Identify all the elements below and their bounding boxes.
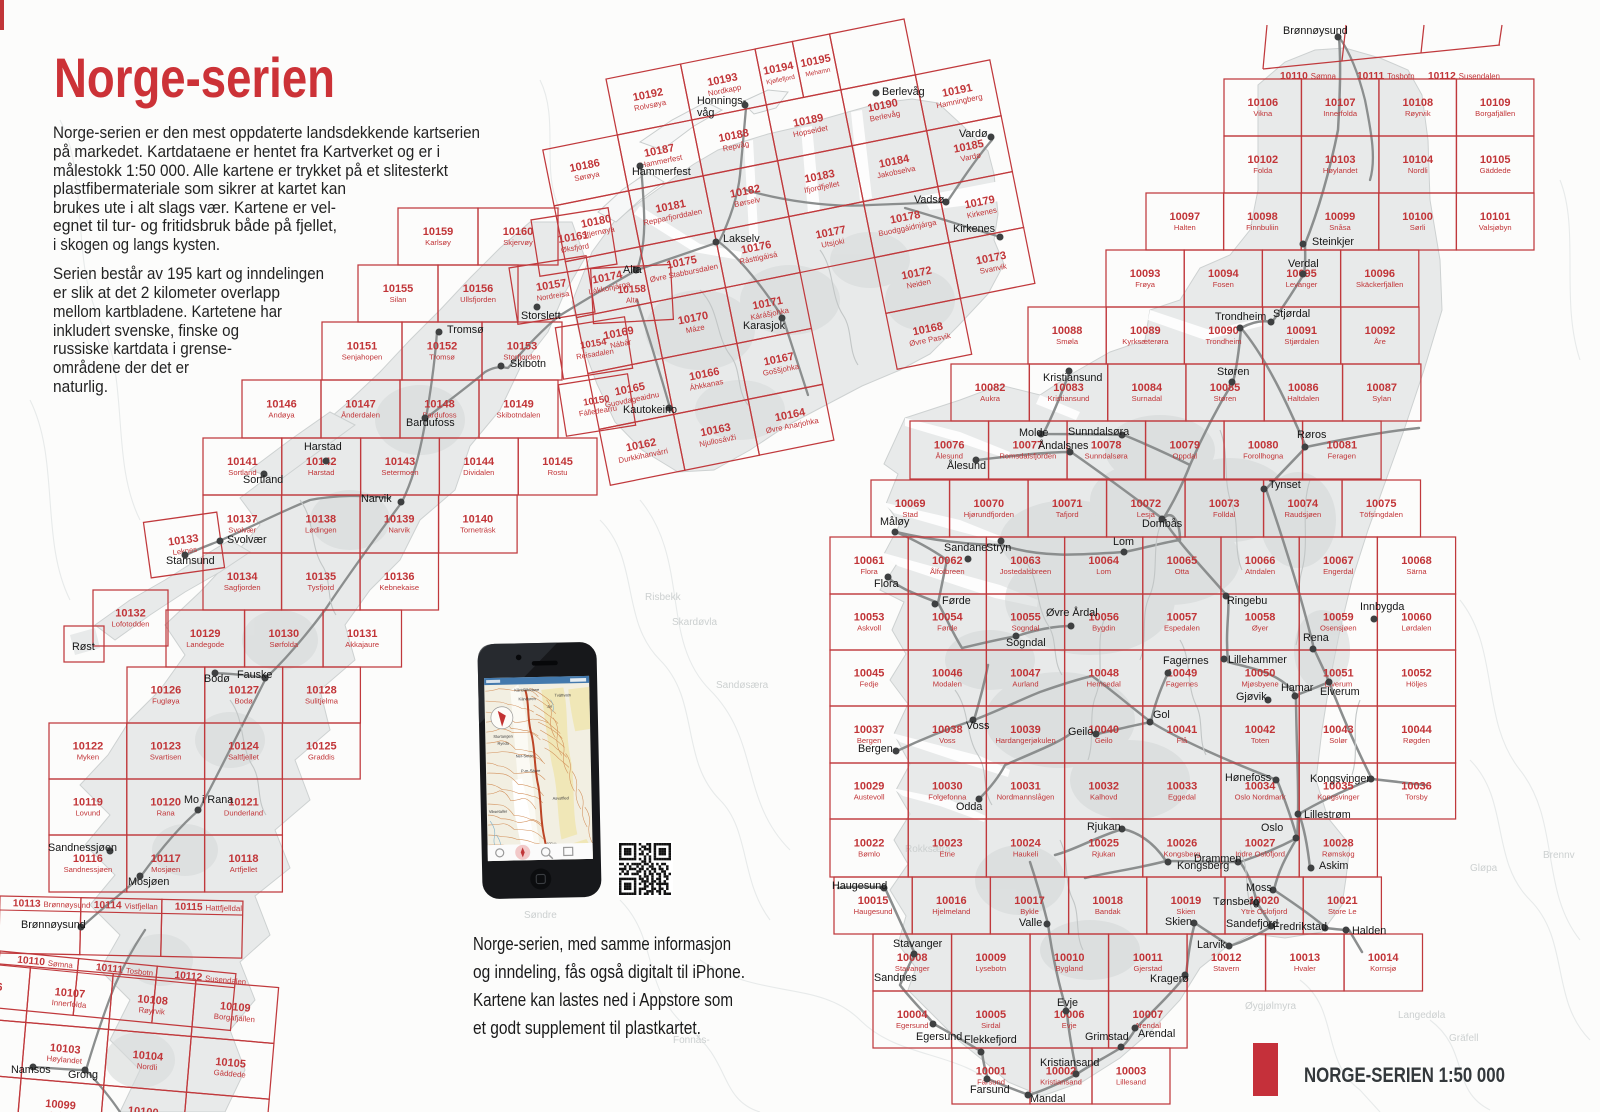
svg-text:Lødingen: Lødingen: [305, 526, 337, 535]
svg-text:Skibotndalen: Skibotndalen: [497, 411, 541, 420]
svg-text:10123: 10123: [150, 741, 181, 753]
svg-text:Rømskog: Rømskog: [1322, 850, 1355, 859]
svg-text:Øygjølmyra: Øygjølmyra: [1245, 1001, 1297, 1012]
svg-text:10129: 10129: [190, 628, 221, 640]
svg-text:10109: 10109: [1480, 97, 1511, 109]
svg-text:10096: 10096: [1364, 268, 1395, 280]
svg-text:Hammerfest: Hammerfest: [632, 166, 691, 178]
svg-text:10055: 10055: [1010, 612, 1041, 624]
svg-text:Skien: Skien: [1165, 916, 1192, 928]
svg-text:Brønnøysund: Brønnøysund: [21, 919, 86, 931]
svg-text:Lofotodden: Lofotodden: [111, 620, 149, 629]
svg-text:10107: 10107: [1325, 97, 1356, 109]
svg-text:10019: 10019: [1171, 895, 1202, 907]
svg-text:Søndre: Søndre: [524, 910, 557, 921]
svg-text:Ålfotbreen: Ålfotbreen: [930, 567, 965, 576]
svg-text:Fedje: Fedje: [860, 680, 879, 689]
svg-text:Fugløya: Fugløya: [152, 697, 180, 706]
svg-text:Lysebotn: Lysebotn: [976, 964, 1007, 973]
svg-text:Langedøla: Langedøla: [1398, 1010, 1446, 1021]
svg-text:Brennv: Brennv: [1543, 850, 1575, 861]
svg-text:10073: 10073: [1209, 498, 1240, 510]
svg-text:10082: 10082: [975, 382, 1006, 394]
svg-text:Sirdal: Sirdal: [981, 1021, 1001, 1030]
svg-text:Jvr: Jvr: [547, 704, 553, 709]
svg-text:Evje: Evje: [1062, 1021, 1077, 1030]
svg-text:10032: 10032: [1088, 781, 1119, 793]
svg-text:Töfsingdalen: Töfsingdalen: [1359, 510, 1402, 519]
svg-text:Artfjellet: Artfjellet: [230, 865, 258, 874]
svg-text:Haugesund: Haugesund: [854, 907, 893, 916]
svg-text:10014: 10014: [1368, 952, 1399, 964]
svg-text:Eggedal: Eggedal: [1168, 793, 1196, 802]
svg-text:Brønnøysund: Brønnøysund: [1283, 25, 1348, 37]
svg-text:Røgden: Røgden: [1403, 736, 1430, 745]
svg-text:Hamar: Hamar: [1281, 682, 1314, 694]
svg-text:10101: 10101: [1480, 211, 1511, 223]
svg-text:Høylandet: Høylandet: [1323, 166, 1358, 175]
svg-text:10038: 10038: [932, 724, 963, 736]
svg-text:Nordli: Nordli: [136, 1061, 157, 1072]
svg-text:Solør: Solør: [1329, 736, 1348, 745]
svg-text:Haukeli: Haukeli: [1013, 850, 1039, 859]
svg-text:10130: 10130: [269, 628, 300, 640]
svg-text:Evje: Evje: [1057, 997, 1078, 1009]
svg-text:10045: 10045: [854, 668, 885, 680]
svg-text:10140: 10140: [463, 514, 494, 526]
svg-text:10127: 10127: [228, 685, 259, 697]
svg-text:Ryeda: Ryeda: [497, 741, 509, 746]
svg-text:Ånderdalen: Ånderdalen: [341, 411, 380, 420]
svg-text:10117: 10117: [151, 853, 181, 865]
svg-text:10016: 10016: [936, 895, 967, 907]
svg-text:10069: 10069: [895, 498, 926, 510]
svg-text:10018: 10018: [1092, 895, 1123, 907]
svg-text:Elverum: Elverum: [1320, 686, 1360, 698]
svg-text:10098: 10098: [1247, 211, 1278, 223]
svg-text:10113Brønnøysund: 10113Brønnøysund: [13, 898, 91, 911]
svg-text:Tynset: Tynset: [1269, 479, 1301, 491]
svg-text:10046: 10046: [932, 668, 963, 680]
svg-text:målestokk 1:50 000. Alle karte: målestokk 1:50 000. Alle kartene er tryk…: [53, 162, 448, 180]
svg-text:10145: 10145: [542, 456, 573, 468]
svg-text:Asvstfled: Asvstfled: [553, 795, 569, 800]
svg-text:10004: 10004: [897, 1009, 928, 1021]
svg-text:10044: 10044: [1401, 724, 1432, 736]
svg-text:10041: 10041: [1167, 724, 1198, 736]
svg-text:10057: 10057: [1167, 612, 1198, 624]
svg-text:10022: 10022: [854, 838, 885, 850]
svg-text:Kragerø: Kragerø: [1150, 973, 1189, 985]
svg-text:10097: 10097: [1170, 211, 1201, 223]
svg-text:er slik at det 2 kilometer ove: er slik at det 2 kilometer overlapp: [53, 284, 280, 302]
svg-text:Egersund: Egersund: [916, 1031, 962, 1043]
svg-text:10118: 10118: [229, 853, 259, 865]
svg-text:Kornsjø: Kornsjø: [1370, 964, 1397, 973]
svg-text:Rana: Rana: [157, 809, 176, 818]
svg-text:Askvoll: Askvoll: [857, 624, 881, 633]
svg-text:10108: 10108: [1403, 97, 1434, 109]
svg-text:10122: 10122: [73, 741, 104, 753]
svg-text:Gløpa: Gløpa: [1470, 863, 1498, 874]
svg-text:Harstad: Harstad: [304, 441, 342, 453]
svg-text:Atndalen: Atndalen: [1245, 567, 1275, 576]
svg-text:Hjelmeland: Hjelmeland: [932, 907, 970, 916]
svg-text:Åndalsnes: Åndalsnes: [1038, 439, 1089, 452]
svg-text:Fauske: Fauske: [237, 669, 272, 681]
svg-text:Vikna: Vikna: [1253, 109, 1273, 118]
svg-text:10144: 10144: [464, 456, 495, 468]
svg-text:Alta: Alta: [623, 264, 642, 276]
svg-text:10053: 10053: [854, 612, 885, 624]
svg-text:10116: 10116: [73, 853, 103, 865]
svg-text:Kalhovd: Kalhovd: [1090, 793, 1117, 802]
svg-text:Modalen: Modalen: [933, 680, 962, 689]
svg-text:10060: 10060: [1401, 612, 1432, 624]
svg-text:Skardøvla: Skardøvla: [672, 617, 717, 628]
svg-text:plastfibermateriale som sikrer: plastfibermateriale som sikrer at kartet…: [53, 180, 346, 198]
svg-text:10010: 10010: [1054, 952, 1085, 964]
svg-text:10003: 10003: [1116, 1066, 1147, 1078]
svg-text:Sørfolda: Sørfolda: [269, 640, 298, 649]
svg-text:10017: 10017: [1014, 895, 1045, 907]
svg-text:Austevoll: Austevoll: [854, 793, 885, 802]
svg-text:Røyrvik: Røyrvik: [1405, 109, 1431, 118]
svg-text:Frøya: Frøya: [1135, 280, 1156, 289]
svg-text:inkludert svenske, finske og: inkludert svenske, finske og: [53, 322, 239, 340]
svg-text:Etne: Etne: [939, 850, 955, 859]
svg-text:10138: 10138: [306, 514, 337, 526]
svg-text:10094: 10094: [1208, 268, 1239, 280]
svg-text:10036: 10036: [1401, 781, 1432, 793]
svg-text:Otta: Otta: [1175, 567, 1190, 576]
svg-text:Øyer: Øyer: [1252, 624, 1269, 633]
svg-text:Bardufoss: Bardufoss: [406, 417, 455, 429]
svg-text:Myken: Myken: [77, 753, 99, 762]
svg-text:Voss: Voss: [939, 736, 956, 745]
svg-text:10126: 10126: [151, 685, 182, 697]
svg-text:10152: 10152: [427, 341, 458, 353]
svg-text:10025: 10025: [1088, 838, 1119, 850]
svg-text:Kristiansund: Kristiansund: [1048, 394, 1090, 403]
svg-text:Vadsø: Vadsø: [914, 194, 945, 206]
svg-text:10054: 10054: [932, 612, 963, 624]
svg-text:Røst: Røst: [72, 641, 95, 653]
svg-text:på markedet. Kartdataene er he: på markedet. Kartdataene er hentet fra K…: [53, 143, 440, 161]
svg-text:Førde: Førde: [942, 595, 971, 607]
svg-text:10085: 10085: [1210, 382, 1241, 394]
svg-text:10089: 10089: [1130, 325, 1161, 337]
svg-text:Raudsjøen: Raudsjøen: [1284, 510, 1321, 519]
svg-text:10119: 10119: [73, 797, 103, 809]
svg-text:Mjøsbyene: Mjøsbyene: [1242, 680, 1279, 689]
svg-text:10081: 10081: [1327, 440, 1358, 452]
svg-text:Ytre Oslofjord: Ytre Oslofjord: [1241, 907, 1287, 916]
svg-text:10048: 10048: [1088, 668, 1119, 680]
svg-text:10143: 10143: [385, 456, 416, 468]
svg-text:våg: våg: [697, 107, 714, 119]
svg-text:naturlig.: naturlig.: [53, 378, 108, 396]
svg-text:10064: 10064: [1088, 555, 1119, 567]
svg-text:Mandal: Mandal: [1030, 1093, 1065, 1105]
svg-text:Storslett: Storslett: [521, 310, 561, 322]
svg-text:Kirkenes: Kirkenes: [953, 223, 996, 235]
svg-text:Lillestrøm: Lillestrøm: [1304, 809, 1351, 821]
svg-text:Aurland: Aurland: [1012, 680, 1038, 689]
svg-text:Halten: Halten: [1174, 223, 1196, 232]
svg-text:10106: 10106: [1248, 97, 1279, 109]
svg-text:Åre: Åre: [1374, 337, 1386, 346]
svg-text:Surnadal: Surnadal: [1132, 394, 1163, 403]
svg-text:Sørli: Sørli: [1410, 223, 1426, 232]
svg-text:Måløy: Måløy: [880, 516, 910, 528]
svg-text:Alta: Alta: [626, 295, 640, 305]
svg-text:Kartene kan lastes ned i Appst: Kartene kan lastes ned i Appstore som: [473, 989, 733, 1010]
svg-text:Hønefoss: Hønefoss: [1225, 772, 1272, 784]
svg-text:10160: 10160: [503, 226, 534, 238]
svg-text:Haltdalen: Haltdalen: [1287, 394, 1319, 403]
svg-text:10112Susendalen: 10112Susendalen: [1428, 71, 1500, 82]
svg-text:10065: 10065: [1167, 555, 1198, 567]
svg-text:10059: 10059: [1323, 612, 1354, 624]
svg-text:Øvre Årdal: Øvre Årdal: [1046, 606, 1098, 619]
svg-text:Sortland: Sortland: [243, 474, 283, 486]
svg-text:10114Vistfjellan: 10114Vistfjellan: [94, 900, 158, 912]
svg-text:10001: 10001: [976, 1066, 1007, 1078]
svg-text:Kautokeino: Kautokeino: [623, 404, 677, 416]
svg-text:Indre Oslofjord: Indre Oslofjord: [1235, 850, 1285, 859]
svg-text:10029: 10029: [854, 781, 885, 793]
svg-text:10105: 10105: [1480, 154, 1511, 166]
svg-text:10013: 10013: [1290, 952, 1321, 964]
svg-text:Mosjøen: Mosjøen: [128, 876, 169, 888]
svg-text:Narvik: Narvik: [361, 493, 392, 505]
svg-text:10137: 10137: [227, 514, 258, 526]
svg-text:10075: 10075: [1366, 498, 1397, 510]
svg-text:10011: 10011: [1133, 952, 1163, 964]
svg-text:10104: 10104: [1403, 154, 1434, 166]
svg-text:Snåsa: Snåsa: [1329, 223, 1351, 232]
svg-text:Flora: Flora: [860, 567, 878, 576]
svg-text:Bergen: Bergen: [858, 743, 893, 755]
svg-text:Stavanger: Stavanger: [893, 938, 943, 950]
svg-text:10120: 10120: [150, 797, 181, 809]
svg-text:Store Le: Store Le: [1328, 907, 1357, 916]
svg-text:Flå: Flå: [1177, 736, 1188, 745]
svg-text:10100: 10100: [1402, 211, 1433, 223]
svg-text:10007: 10007: [1133, 1009, 1164, 1021]
svg-text:Kristiansand: Kristiansand: [1040, 1057, 1099, 1069]
svg-text:10023: 10023: [932, 838, 963, 850]
svg-text:Drammen: Drammen: [1194, 853, 1241, 865]
svg-text:Skibotn: Skibotn: [510, 358, 546, 370]
svg-text:10103: 10103: [1325, 154, 1356, 166]
svg-text:Gäddede: Gäddede: [1480, 166, 1511, 175]
svg-text:Vardø: Vardø: [959, 128, 988, 140]
svg-text:Graddis: Graddis: [308, 753, 335, 762]
svg-text:Skjervøy: Skjervøy: [503, 238, 533, 247]
svg-text:Toten: Toten: [1251, 736, 1270, 745]
svg-text:10141: 10141: [227, 456, 258, 468]
svg-text:Bømlo: Bømlo: [858, 850, 880, 859]
svg-text:Sylan: Sylan: [1372, 394, 1391, 403]
svg-text:Geilo: Geilo: [1095, 736, 1113, 745]
svg-text:Smøla: Smøla: [1056, 337, 1079, 346]
svg-text:10151: 10151: [347, 341, 378, 353]
svg-text:Tromsø: Tromsø: [429, 353, 455, 362]
svg-text:10030: 10030: [932, 781, 963, 793]
svg-text:10155: 10155: [383, 283, 414, 295]
svg-text:10124: 10124: [228, 741, 259, 753]
svg-text:Folldal: Folldal: [1213, 510, 1236, 519]
svg-text:Tvättvatn: Tvättvatn: [554, 692, 571, 697]
svg-text:Lørdalen: Lørdalen: [1402, 624, 1432, 633]
svg-text:10080: 10080: [1248, 440, 1279, 452]
svg-text:Sandnessjøen: Sandnessjøen: [48, 842, 117, 854]
svg-text:mellom kartbladene. Kartetene: mellom kartbladene. Kartetene har: [53, 303, 282, 321]
svg-text:10027: 10027: [1245, 838, 1276, 850]
svg-text:Fredrikstad: Fredrikstad: [1273, 921, 1327, 933]
svg-text:Lakselv: Lakselv: [723, 233, 760, 245]
svg-text:Trondheim: Trondheim: [1215, 311, 1266, 323]
svg-text:10125: 10125: [306, 741, 337, 753]
svg-text:10037: 10037: [854, 724, 885, 736]
svg-text:10009: 10009: [976, 952, 1007, 964]
svg-text:10070: 10070: [974, 498, 1005, 510]
svg-text:Svartisen: Svartisen: [150, 753, 182, 762]
svg-text:Nordmannslågen: Nordmannslågen: [997, 793, 1055, 802]
svg-text:Feragen: Feragen: [1328, 452, 1356, 461]
svg-text:Sandnessjøen: Sandnessjøen: [64, 865, 113, 874]
svg-text:Rostu: Rostu: [548, 468, 568, 477]
svg-text:10084: 10084: [1132, 382, 1163, 394]
svg-text:Innerfolda: Innerfolda: [1323, 109, 1358, 118]
svg-text:Andøya: Andøya: [268, 411, 295, 420]
svg-text:10066: 10066: [1245, 555, 1276, 567]
svg-text:10149: 10149: [503, 399, 534, 411]
svg-text:10139: 10139: [384, 514, 415, 526]
svg-text:10148: 10148: [424, 399, 455, 411]
svg-text:Kårtdålfndane: Kårtdålfndane: [514, 687, 540, 693]
svg-text:Folda: Folda: [1253, 166, 1273, 175]
svg-text:Lillehammer: Lillehammer: [1228, 654, 1287, 666]
svg-text:Hjørundfjorden: Hjørundfjorden: [964, 510, 1014, 519]
svg-text:Sogndal: Sogndal: [1012, 624, 1040, 633]
svg-text:Narvik: Narvik: [388, 526, 410, 535]
svg-text:Verdal: Verdal: [1288, 258, 1319, 270]
svg-text:Sagfjorden: Sagfjorden: [224, 583, 261, 592]
svg-text:Bykle: Bykle: [1020, 907, 1039, 916]
svg-text:Levanger: Levanger: [1286, 280, 1318, 289]
svg-text:Oslo Nordmark: Oslo Nordmark: [1235, 793, 1286, 802]
svg-text:Ringebu: Ringebu: [1227, 595, 1267, 607]
svg-text:Førde: Førde: [937, 624, 957, 633]
svg-text:10159: 10159: [423, 226, 454, 238]
svg-text:Espedalen: Espedalen: [1164, 624, 1200, 633]
svg-text:Sogndal: Sogndal: [1006, 637, 1046, 649]
svg-text:Finnbuliin: Finnbuliin: [1246, 223, 1279, 232]
svg-text:Lom: Lom: [1096, 567, 1111, 576]
svg-text:P-m-Säure: P-m-Säure: [521, 768, 541, 773]
svg-text:Stortangen: Stortangen: [493, 734, 513, 739]
svg-text:Larvik: Larvik: [1197, 939, 1226, 951]
svg-text:Rjukan: Rjukan: [1092, 850, 1116, 859]
svg-text:10090: 10090: [1208, 325, 1239, 337]
svg-text:Flora: Flora: [874, 578, 899, 590]
svg-text:Valsjøbyn: Valsjøbyn: [1479, 223, 1512, 232]
svg-text:10132: 10132: [115, 608, 146, 620]
svg-text:Hemsedal: Hemsedal: [1087, 680, 1121, 689]
svg-text:Svolvær: Svolvær: [227, 534, 267, 546]
svg-text:Farsund: Farsund: [970, 1084, 1010, 1096]
svg-text:Skien: Skien: [1176, 907, 1195, 916]
svg-text:Stjørdal: Stjørdal: [1273, 308, 1310, 320]
svg-text:Aukra: Aukra: [980, 394, 1001, 403]
svg-text:Fosen: Fosen: [1213, 280, 1234, 289]
svg-text:Stryn: Stryn: [986, 542, 1011, 554]
svg-text:Skäckerfjällen: Skäckerfjällen: [1356, 280, 1403, 289]
svg-text:10134: 10134: [227, 571, 258, 583]
svg-text:10058: 10058: [1245, 612, 1276, 624]
svg-text:10071: 10071: [1052, 498, 1083, 510]
svg-text:Halden: Halden: [1352, 925, 1386, 937]
svg-text:10074: 10074: [1288, 498, 1319, 510]
svg-text:Sandøsæra: Sandøsæra: [716, 680, 769, 691]
svg-text:Gräfell: Gräfell: [1449, 1033, 1478, 1044]
svg-text:10087: 10087: [1366, 382, 1397, 394]
svg-text:Rena: Rena: [1303, 632, 1329, 644]
svg-text:Romsdalsfjorden: Romsdalsfjorden: [999, 452, 1056, 461]
svg-text:Lovund: Lovund: [75, 809, 100, 818]
svg-text:Harstad: Harstad: [308, 468, 335, 477]
svg-text:Dividalen: Dividalen: [463, 468, 494, 477]
svg-text:Rjukan: Rjukan: [1087, 821, 1121, 833]
svg-text:10135: 10135: [306, 571, 337, 583]
svg-text:Risbekk: Risbekk: [645, 592, 682, 603]
svg-text:10086: 10086: [1288, 382, 1319, 394]
svg-text:10076: 10076: [934, 440, 965, 452]
svg-text:Forollhogna: Forollhogna: [1243, 452, 1284, 461]
svg-text:Kändoren: Kändoren: [518, 696, 535, 701]
svg-text:Ner-Seizn: Ner-Seizn: [516, 753, 534, 758]
svg-text:Kristiansand: Kristiansand: [1040, 1078, 1082, 1087]
svg-text:10128: 10128: [306, 685, 337, 697]
svg-text:Støren: Støren: [1217, 366, 1249, 378]
svg-text:Norge-serien er den mest oppda: Norge-serien er den mest oppdaterte land…: [53, 124, 480, 142]
svg-text:Tafjord: Tafjord: [1056, 510, 1079, 519]
svg-text:Engerdal: Engerdal: [1323, 567, 1354, 576]
svg-text:Odda: Odda: [956, 801, 982, 813]
svg-text:Sunndalsøra: Sunndalsøra: [1068, 426, 1129, 438]
svg-text:10051: 10051: [1323, 668, 1354, 680]
svg-text:Oslo: Oslo: [1261, 822, 1283, 834]
svg-text:Tysfjord: Tysfjord: [308, 583, 335, 592]
svg-text:10061: 10061: [854, 555, 885, 567]
svg-text:Sandnes: Sandnes: [874, 972, 917, 984]
svg-text:Karasjok: Karasjok: [743, 320, 786, 332]
svg-text:10102: 10102: [1248, 154, 1279, 166]
svg-text:10024: 10024: [1010, 838, 1041, 850]
svg-text:Sunndalsøra: Sunndalsøra: [1085, 452, 1129, 461]
svg-text:Nordli: Nordli: [1408, 166, 1428, 175]
svg-text:Stamsund: Stamsund: [166, 555, 215, 567]
svg-text:egnet til tur- og fritidsbruk: egnet til tur- og fritidsbruk både på fj…: [53, 217, 337, 235]
svg-text:Viksetaller: Viksetaller: [489, 809, 508, 814]
svg-text:Honnings-: Honnings-: [697, 95, 747, 107]
svg-text:Kebnekaise: Kebnekaise: [379, 583, 419, 592]
svg-text:10043: 10043: [1323, 724, 1354, 736]
svg-text:Gjerstad: Gjerstad: [1133, 964, 1162, 973]
